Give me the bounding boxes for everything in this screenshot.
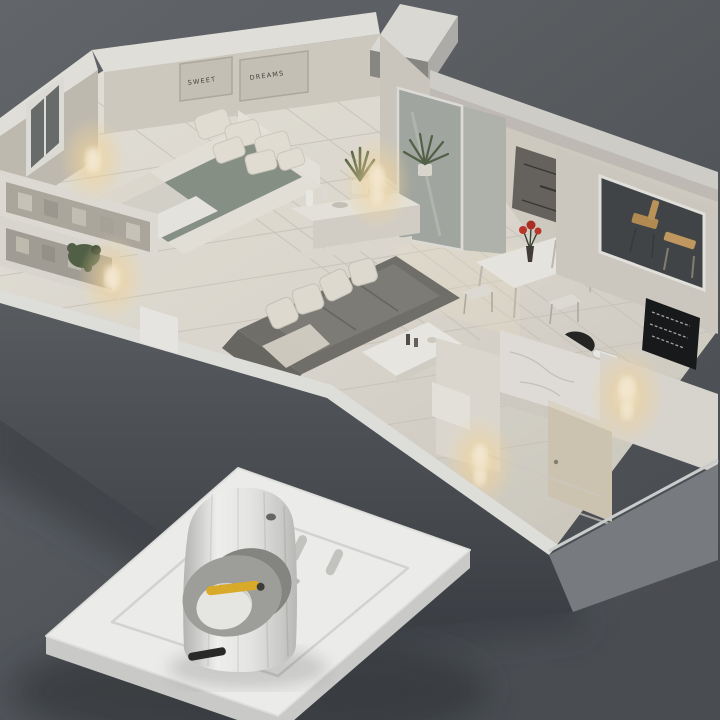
- render-scene: SWEET DREAMS: [0, 0, 720, 720]
- vignette: [0, 0, 720, 720]
- scene-canvas: SWEET DREAMS: [0, 0, 720, 720]
